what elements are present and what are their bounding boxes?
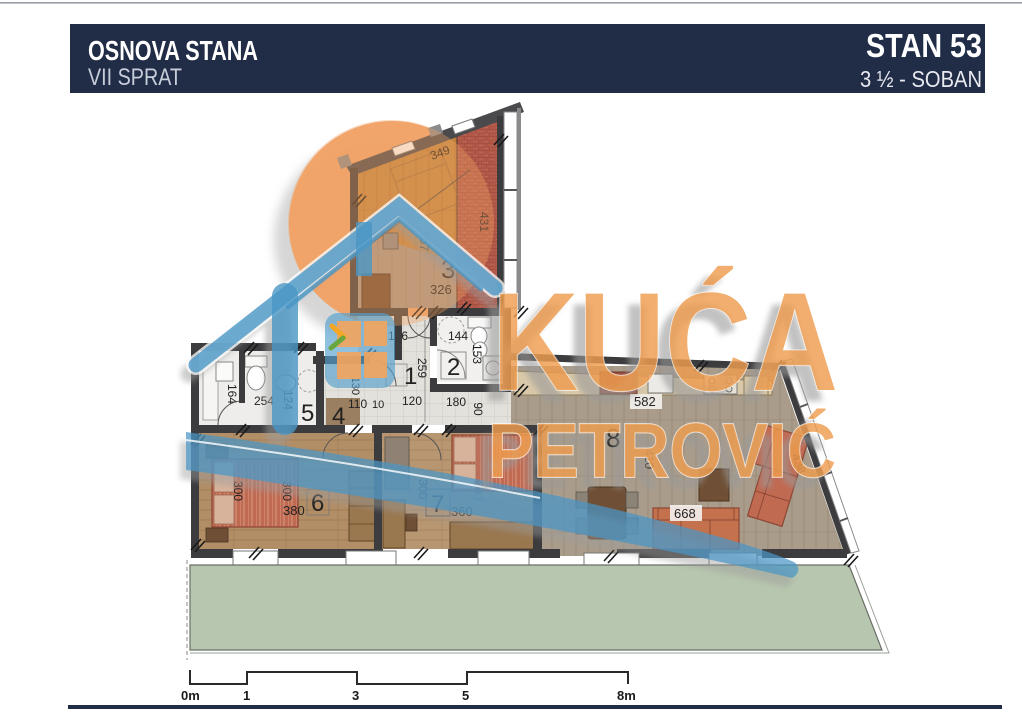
svg-text:380: 380 — [283, 503, 305, 518]
svg-text:3: 3 — [352, 688, 359, 703]
svg-text:120: 120 — [402, 394, 422, 408]
svg-text:PETROVIĆ: PETROVIĆ — [488, 408, 836, 494]
svg-text:0m: 0m — [181, 688, 200, 703]
svg-text:180: 180 — [446, 395, 466, 409]
svg-text:3 ½ - SOBAN: 3 ½ - SOBAN — [860, 66, 982, 92]
svg-text:668: 668 — [674, 506, 696, 521]
svg-text:5: 5 — [301, 400, 314, 427]
svg-text:144: 144 — [448, 329, 468, 343]
svg-text:1: 1 — [404, 363, 417, 390]
svg-text:STAN 53: STAN 53 — [866, 27, 982, 64]
svg-text:10: 10 — [372, 399, 384, 411]
svg-text:110: 110 — [348, 397, 367, 411]
svg-text:KUĆA: KUĆA — [492, 263, 838, 420]
svg-text:2: 2 — [447, 354, 460, 381]
svg-text:OSNOVA STANA: OSNOVA STANA — [88, 35, 258, 66]
svg-text:8m: 8m — [617, 688, 636, 703]
svg-text:VII SPRAT: VII SPRAT — [88, 64, 182, 91]
svg-text:1: 1 — [243, 688, 250, 703]
svg-text:5: 5 — [462, 688, 469, 703]
